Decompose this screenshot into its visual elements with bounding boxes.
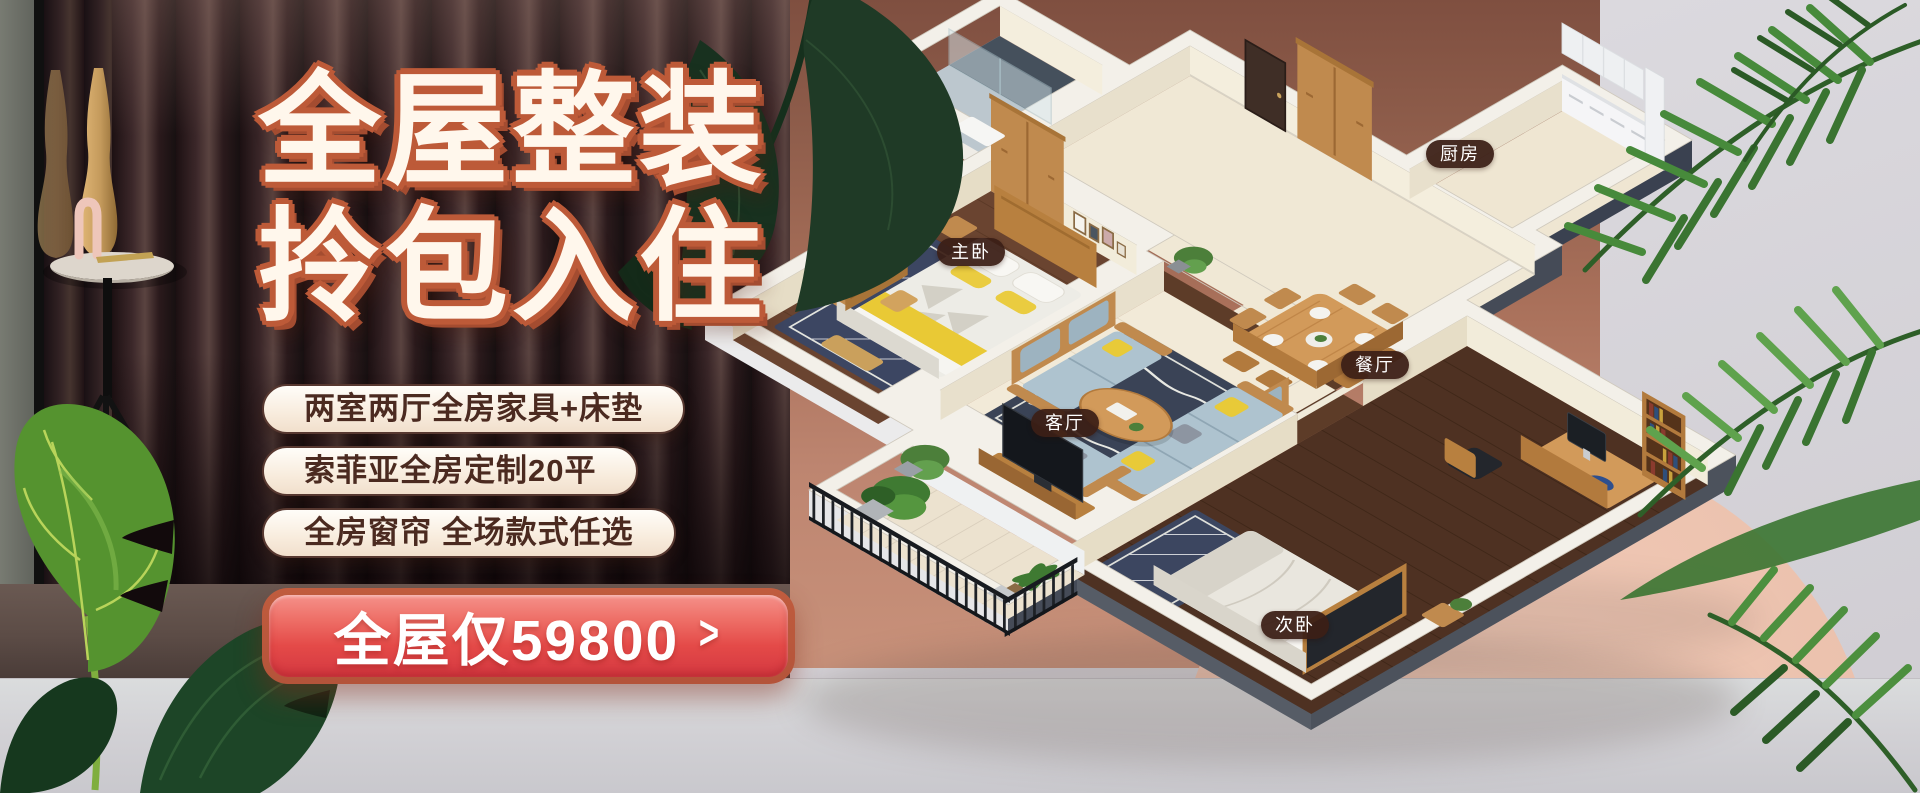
arrow-right-icon: > (699, 606, 719, 661)
selling-point-2: 索菲亚全房定制20平 (262, 446, 638, 496)
headline-line2: 拎包入住 (258, 200, 766, 336)
promo-banner: 全屋整装 拎包入住 两室两厅全房家具+床垫 索菲亚全房定制20平 全房窗帘 全场… (0, 0, 1920, 793)
selling-point-2-label: 索菲亚全房定制20平 (304, 453, 596, 488)
room-label-second-bedroom: 次卧 (1261, 611, 1329, 639)
selling-point-1-label: 两室两厅全房家具+床垫 (304, 391, 643, 426)
selling-point-3: 全房窗帘 全场款式任选 (262, 508, 676, 558)
price-cta-button[interactable]: 全屋仅59800 > (262, 588, 795, 684)
room-label-kitchen-text: 厨房 (1440, 144, 1480, 164)
room-label-living: 客厅 (1031, 409, 1099, 437)
side-table-still-life (37, 68, 187, 458)
selling-point-1: 两室两厅全房家具+床垫 (262, 384, 685, 434)
room-label-second-bedroom-text: 次卧 (1275, 615, 1315, 635)
room-label-living-text: 客厅 (1045, 413, 1085, 433)
price-cta-label: 全屋仅59800 (334, 595, 680, 677)
headline: 全屋整装 拎包入住 (258, 64, 766, 336)
room-label-master-bedroom-text: 主卧 (951, 242, 991, 262)
room-label-master-bedroom: 主卧 (937, 238, 1005, 266)
room-label-dining: 餐厅 (1341, 351, 1409, 379)
room-label-dining-text: 餐厅 (1355, 355, 1395, 375)
price-cta-inner: 全屋仅59800 > (269, 595, 788, 677)
room-label-kitchen: 厨房 (1426, 140, 1494, 168)
headline-line1: 全屋整装 (258, 64, 766, 200)
selling-point-3-label: 全房窗帘 全场款式任选 (304, 515, 634, 550)
